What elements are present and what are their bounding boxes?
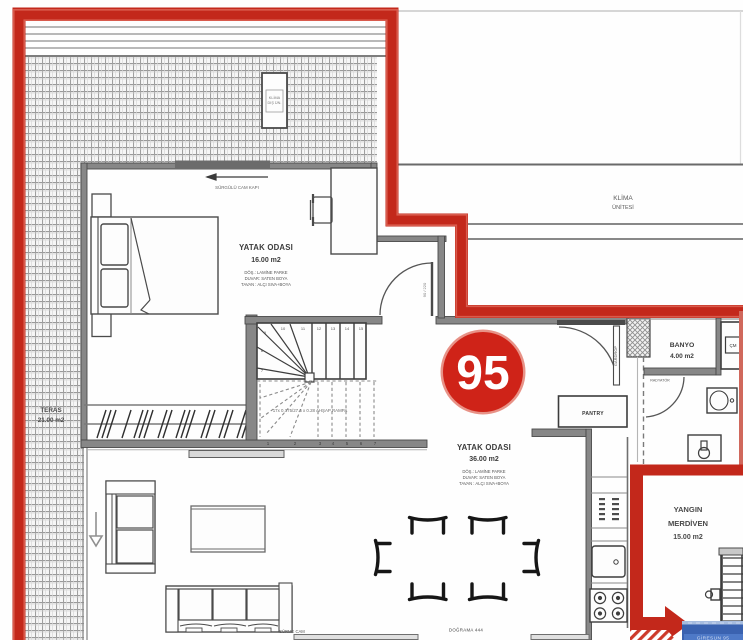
svg-text:17x 0.175/27.6 x 0.28 AHŞAP RA: 17x 0.175/27.6 x 0.28 AHŞAP RAMPA (273, 408, 348, 413)
svg-text:YATAK ODASI: YATAK ODASI (457, 443, 511, 452)
svg-text:KLİMA: KLİMA (613, 193, 633, 202)
svg-text:15.00 m2: 15.00 m2 (673, 534, 703, 541)
svg-text:RADYATÖR: RADYATÖR (650, 379, 670, 383)
svg-text:YATAK ODASI: YATAK ODASI (239, 243, 293, 252)
svg-text:BANYO: BANYO (670, 342, 695, 349)
svg-text:DOĞRAMA 444: DOĞRAMA 444 (449, 628, 484, 633)
svg-text:GARDROP: GARDROP (613, 346, 618, 367)
svg-text:13: 13 (331, 326, 336, 331)
svg-text:16.00 m2: 16.00 m2 (251, 257, 281, 264)
svg-text:TAVAN : ALÇI SIVA+BOYA: TAVAN : ALÇI SIVA+BOYA (459, 481, 509, 486)
svg-text:PANTRY: PANTRY (582, 411, 604, 417)
svg-text:SÜRGÜLÜ CAM KAPI: SÜRGÜLÜ CAM KAPI (215, 185, 259, 190)
svg-text:ÇM: ÇM (730, 343, 737, 348)
svg-text:10: 10 (281, 326, 286, 331)
svg-text:95: 95 (456, 347, 509, 400)
svg-text:ÜNİTESİ: ÜNİTESİ (612, 204, 634, 211)
svg-text:TAVAN : ALÇI SIVA+BOYA: TAVAN : ALÇI SIVA+BOYA (241, 282, 291, 287)
svg-text:KLİMA: KLİMA (269, 95, 281, 100)
svg-text:DÖŞ.: LAMİNE PARKE: DÖŞ.: LAMİNE PARKE (462, 469, 505, 474)
svg-text:DUVAR: SATEN BOYA: DUVAR: SATEN BOYA (245, 276, 288, 281)
svg-text:YANGIN: YANGIN (674, 505, 703, 514)
svg-text:SÜRME CAM: SÜRME CAM (279, 629, 305, 634)
svg-text:12: 12 (317, 326, 322, 331)
svg-text:90 / 220: 90 / 220 (422, 282, 427, 297)
svg-text:4.00 m2: 4.00 m2 (670, 353, 694, 360)
svg-text:36.00 m2: 36.00 m2 (469, 456, 499, 463)
svg-text:14: 14 (345, 326, 350, 331)
svg-text:TERAS: TERAS (40, 407, 61, 414)
svg-text:15: 15 (359, 326, 364, 331)
svg-text:21.00 m2: 21.00 m2 (38, 417, 65, 424)
svg-text:DIŞ ÜN.: DIŞ ÜN. (268, 101, 282, 105)
svg-text:MERDİVEN: MERDİVEN (668, 519, 708, 528)
svg-text:DÖŞ.: LAMİNE PARKE: DÖŞ.: LAMİNE PARKE (244, 270, 287, 275)
svg-text:DUVAR: SATEN BOYA: DUVAR: SATEN BOYA (463, 475, 506, 480)
